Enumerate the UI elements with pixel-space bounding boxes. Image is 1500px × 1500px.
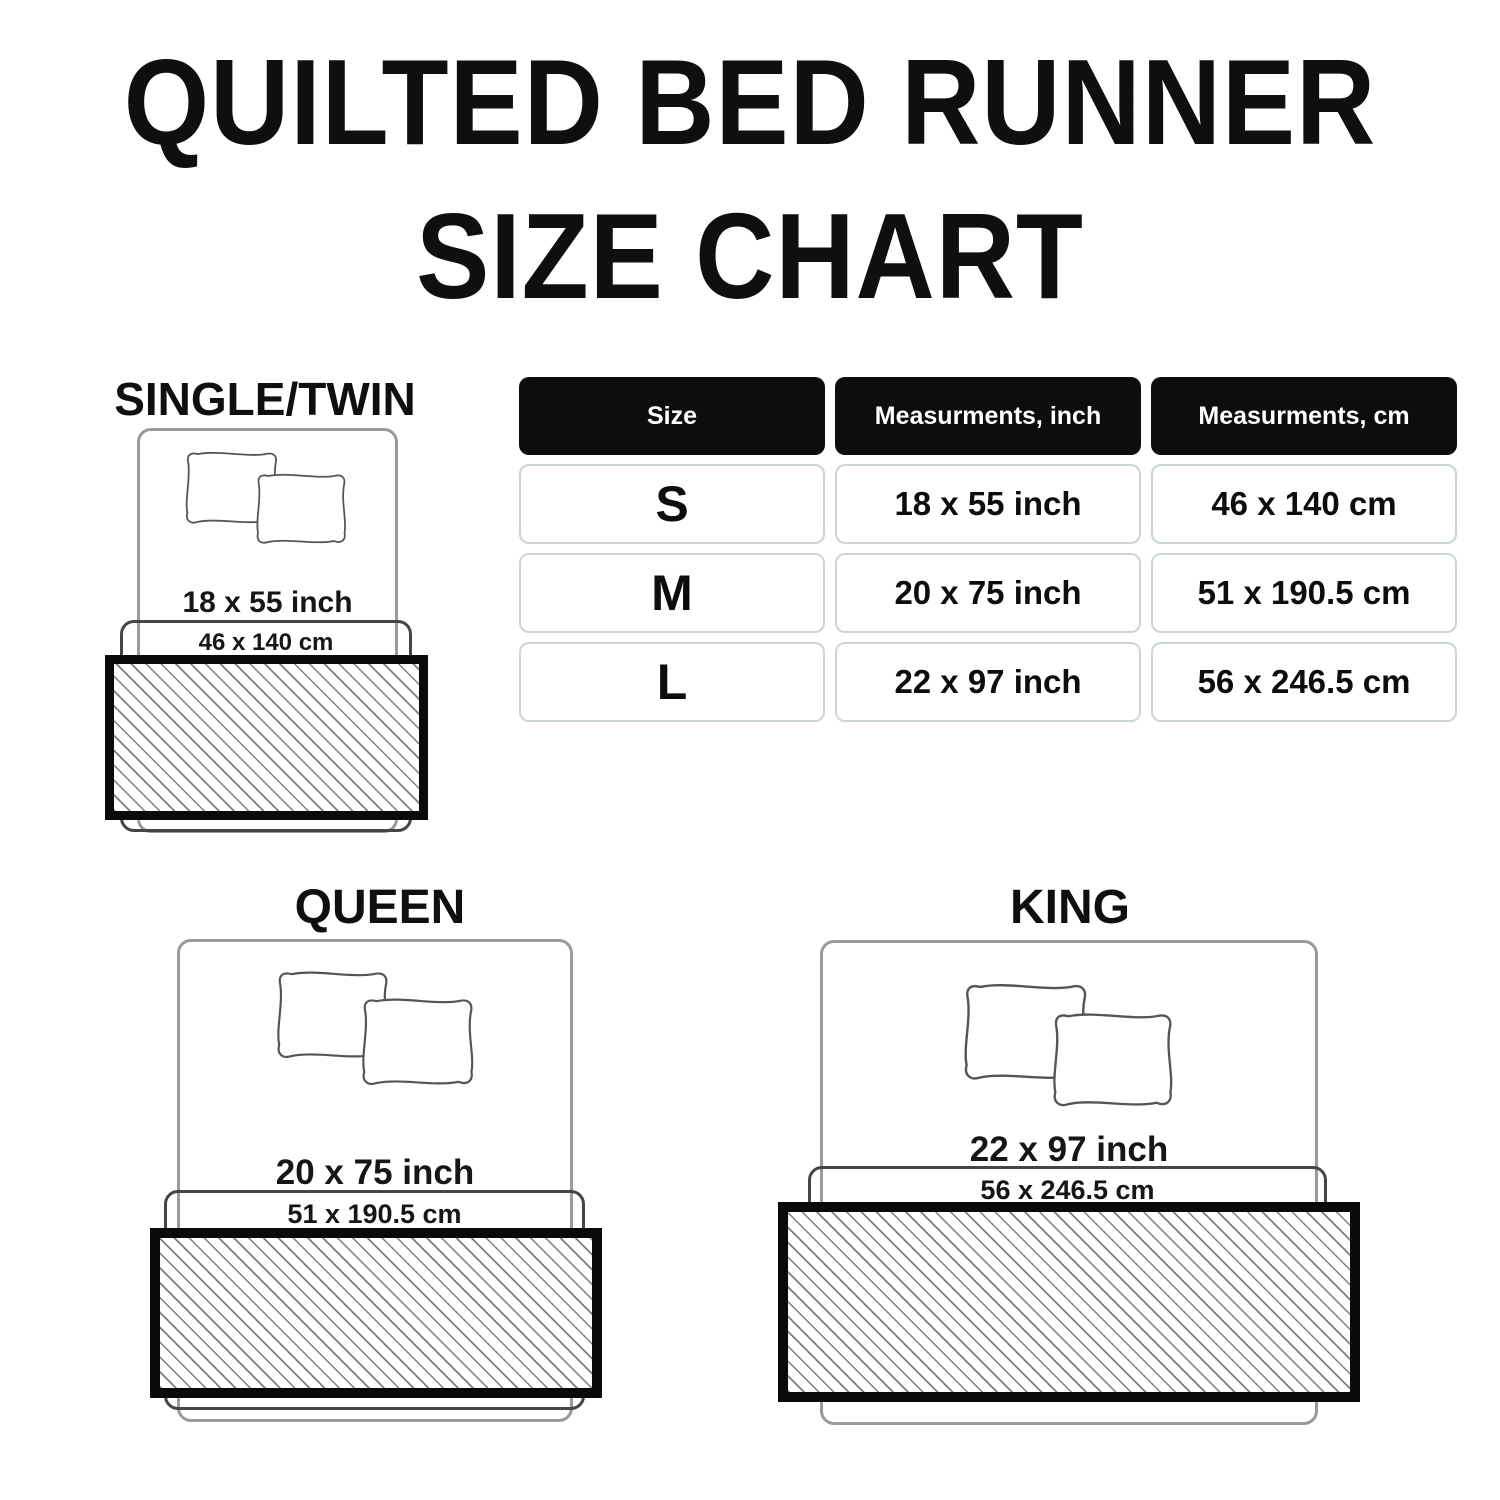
table-cell-size-s: S	[519, 464, 825, 544]
runner-size-cm-single-twin: 46 x 140 cm	[123, 629, 409, 657]
bed-runner-hatched-single-twin	[105, 655, 428, 820]
bed-size-label-single-twin: SINGLE/TWIN	[90, 372, 440, 426]
table-cell-inch-l: 22 x 97 inch	[835, 642, 1141, 722]
diagram-queen: QUEEN 20 x 75 inch 51 x 190.5 cm	[140, 872, 620, 1450]
pillows-illustration	[823, 943, 1315, 1123]
table-cell-size-l: L	[519, 642, 825, 722]
column-header-size: Size	[519, 377, 825, 455]
page-title-line-2: SIZE CHART	[75, 180, 1425, 334]
table-cell-inch-m: 20 x 75 inch	[835, 553, 1141, 633]
column-header-measurements-inch: Measurments, inch	[835, 377, 1141, 455]
pillow-icon	[1054, 1015, 1171, 1105]
runner-size-inch-king: 22 x 97 inch	[823, 1130, 1315, 1170]
diagram-single-twin: SINGLE/TWIN 18 x 55 inch 46 x 140 cm	[90, 372, 440, 877]
pillow-icon	[363, 1000, 472, 1084]
size-chart-infographic: QUILTED BED RUNNER SIZE CHART Size Measu…	[0, 0, 1500, 1500]
runner-size-cm-queen: 51 x 190.5 cm	[167, 1199, 582, 1230]
diagram-king: KING 22 x 97 inch 56 x 246.5 cm	[770, 872, 1370, 1450]
bed-runner-hatched-king	[778, 1202, 1360, 1402]
page-title: QUILTED BED RUNNER SIZE CHART	[75, 26, 1425, 333]
page-title-line-1: QUILTED BED RUNNER	[75, 26, 1425, 180]
bed-size-label-king: KING	[770, 880, 1370, 935]
bed-size-label-queen: QUEEN	[140, 880, 620, 935]
runner-size-inch-queen: 20 x 75 inch	[180, 1153, 570, 1193]
table-cell-inch-s: 18 x 55 inch	[835, 464, 1141, 544]
runner-size-inch-single-twin: 18 x 55 inch	[140, 586, 395, 620]
pillow-icon	[257, 475, 345, 543]
table-cell-size-m: M	[519, 553, 825, 633]
pillows-illustration	[180, 942, 570, 1102]
table-cell-cm-s: 46 x 140 cm	[1151, 464, 1457, 544]
bed-runner-hatched-queen	[150, 1228, 602, 1398]
table-cell-cm-l: 56 x 246.5 cm	[1151, 642, 1457, 722]
size-table: Size Measurments, inch Measurments, cm S…	[519, 377, 1457, 722]
column-header-measurements-cm: Measurments, cm	[1151, 377, 1457, 455]
pillows-illustration	[140, 431, 395, 601]
table-cell-cm-m: 51 x 190.5 cm	[1151, 553, 1457, 633]
